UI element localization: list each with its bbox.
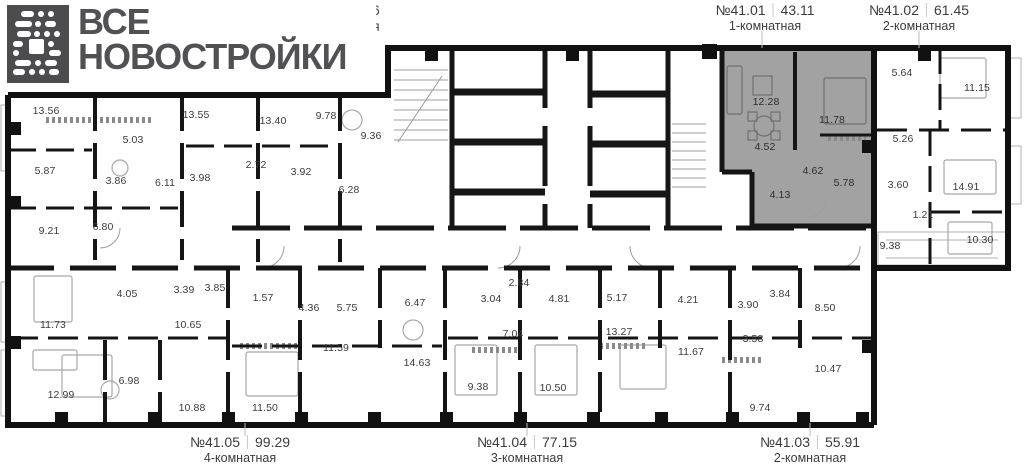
apartment-label-41.02[interactable]: №41.0261.452-комнатная	[869, 2, 969, 33]
apartment-area: 61.45	[934, 2, 969, 18]
site-logo[interactable]: ВСЕ НОВОСТРОЙКИ	[0, 0, 376, 88]
room-area-label: 2.84	[509, 277, 530, 289]
room-area-label: 9.21	[39, 225, 60, 237]
room-area-label: 10.30	[967, 234, 994, 246]
apartment-number: №41.02	[869, 2, 919, 18]
room-area-label: 9.38	[880, 240, 901, 252]
room-area-label: 4.36	[299, 302, 320, 314]
logo-text: ВСЕ НОВОСТРОЙКИ	[78, 4, 346, 75]
room-area-label: 6.80	[93, 221, 114, 233]
room-area-label: 13.40	[260, 115, 287, 127]
room-area-label: 3.39	[174, 284, 195, 296]
apartment-area: 99.29	[255, 434, 290, 450]
room-area-label: 13.55	[183, 109, 210, 121]
room-area-label: 10.47	[815, 363, 842, 375]
room-area-label: 11.59	[323, 342, 349, 354]
room-area-label: 3.85	[205, 282, 226, 294]
room-area-label: 2.72	[246, 159, 267, 171]
room-area-label: 9.74	[750, 402, 771, 414]
apartment-type: 1-комнатная	[715, 19, 814, 33]
apartment-number: №41.03	[760, 434, 810, 450]
room-area-label: 1.57	[253, 292, 274, 304]
room-area-label: 6.47	[405, 297, 426, 309]
room-area-label: 6.98	[119, 375, 140, 387]
room-area-label: 13.56	[33, 105, 60, 117]
label-divider	[247, 435, 248, 449]
room-area-label: 9.36	[361, 130, 382, 142]
apartment-area: 43.11	[781, 2, 815, 18]
room-area-label: 3.86	[106, 175, 127, 187]
room-area-label: 5.75	[337, 302, 358, 314]
room-area-label: 10.65	[175, 319, 202, 331]
room-area-label: 3.90	[738, 299, 759, 311]
apartment-type: 2-комнатная	[760, 451, 860, 465]
apartment-area: 55.91	[825, 434, 860, 450]
room-area-label: 4.81	[549, 293, 570, 305]
room-area-label: 3.92	[291, 166, 312, 178]
room-area-label: 14.91	[953, 181, 980, 193]
apartment-label-41.03[interactable]: №41.0355.912-комнатная	[760, 434, 860, 465]
room-area-label: 13.27	[606, 326, 633, 338]
room-area-label: 10.50	[540, 382, 567, 394]
room-area-label: 8.50	[815, 302, 836, 314]
label-divider	[534, 435, 535, 449]
room-area-label: 3.98	[190, 172, 211, 184]
logo-text-line2: НОВОСТРОЙКИ	[78, 39, 346, 74]
logo-text-line1: ВСЕ	[78, 4, 346, 39]
room-area-label: 4.05	[117, 288, 138, 300]
room-area-label: 10.88	[179, 402, 206, 414]
apartment-area: 77.15	[542, 434, 577, 450]
room-area-label: 5.64	[892, 67, 913, 79]
label-divider	[773, 3, 774, 17]
apartment-label-41.04[interactable]: №41.0477.153-комнатная	[477, 434, 577, 465]
floorplan-page: 13.565.0313.5513.409.789.365.873.866.113…	[0, 0, 1024, 466]
room-area-label: 5.03	[123, 134, 144, 146]
room-area-label: 5.26	[893, 133, 914, 145]
apartment-number: №41.05	[190, 434, 240, 450]
room-area-label: 11.67	[678, 346, 704, 358]
stairs	[394, 70, 706, 187]
room-area-label: 9.78	[316, 110, 337, 122]
apartment-type: 4-комнатная	[190, 451, 290, 465]
room-area-label: 3.58	[743, 333, 764, 345]
room-area-label: 6.11	[155, 177, 175, 189]
room-area-label: 14.63	[404, 357, 431, 369]
room-area-label: 1.21	[913, 209, 934, 221]
apartment-number: №41.04	[477, 434, 527, 450]
room-area-label: 5.17	[607, 292, 628, 304]
room-area-label: 3.04	[481, 293, 502, 305]
room-area-label: 11.73	[40, 319, 66, 331]
logo-pixel-icon	[7, 5, 69, 83]
apartment-type: 2-комнатная	[869, 19, 969, 33]
highlighted-apartment-41-01[interactable]	[722, 50, 872, 225]
apartment-number: №41.01	[715, 2, 765, 18]
room-area-label: 3.84	[770, 288, 791, 300]
apartment-label-41.05[interactable]: №41.0599.294-комнатная	[190, 434, 290, 465]
apartment-label-41.01[interactable]: №41.0143.111-комнатная	[715, 2, 814, 33]
room-area-label: 6.28	[339, 184, 360, 196]
room-area-label: 7.04	[503, 328, 524, 340]
room-area-label: 11.50	[252, 402, 278, 414]
room-area-label: 12.99	[48, 389, 75, 401]
room-area-label: 9.38	[468, 381, 489, 393]
apartment-type: 3-комнатная	[477, 451, 577, 465]
room-area-label: 4.21	[678, 294, 699, 306]
label-divider	[926, 3, 927, 17]
room-area-label: 5.87	[35, 165, 56, 177]
room-area-label: 3.60	[888, 179, 909, 191]
label-divider	[817, 435, 818, 449]
room-area-label: 11.15	[964, 82, 990, 94]
